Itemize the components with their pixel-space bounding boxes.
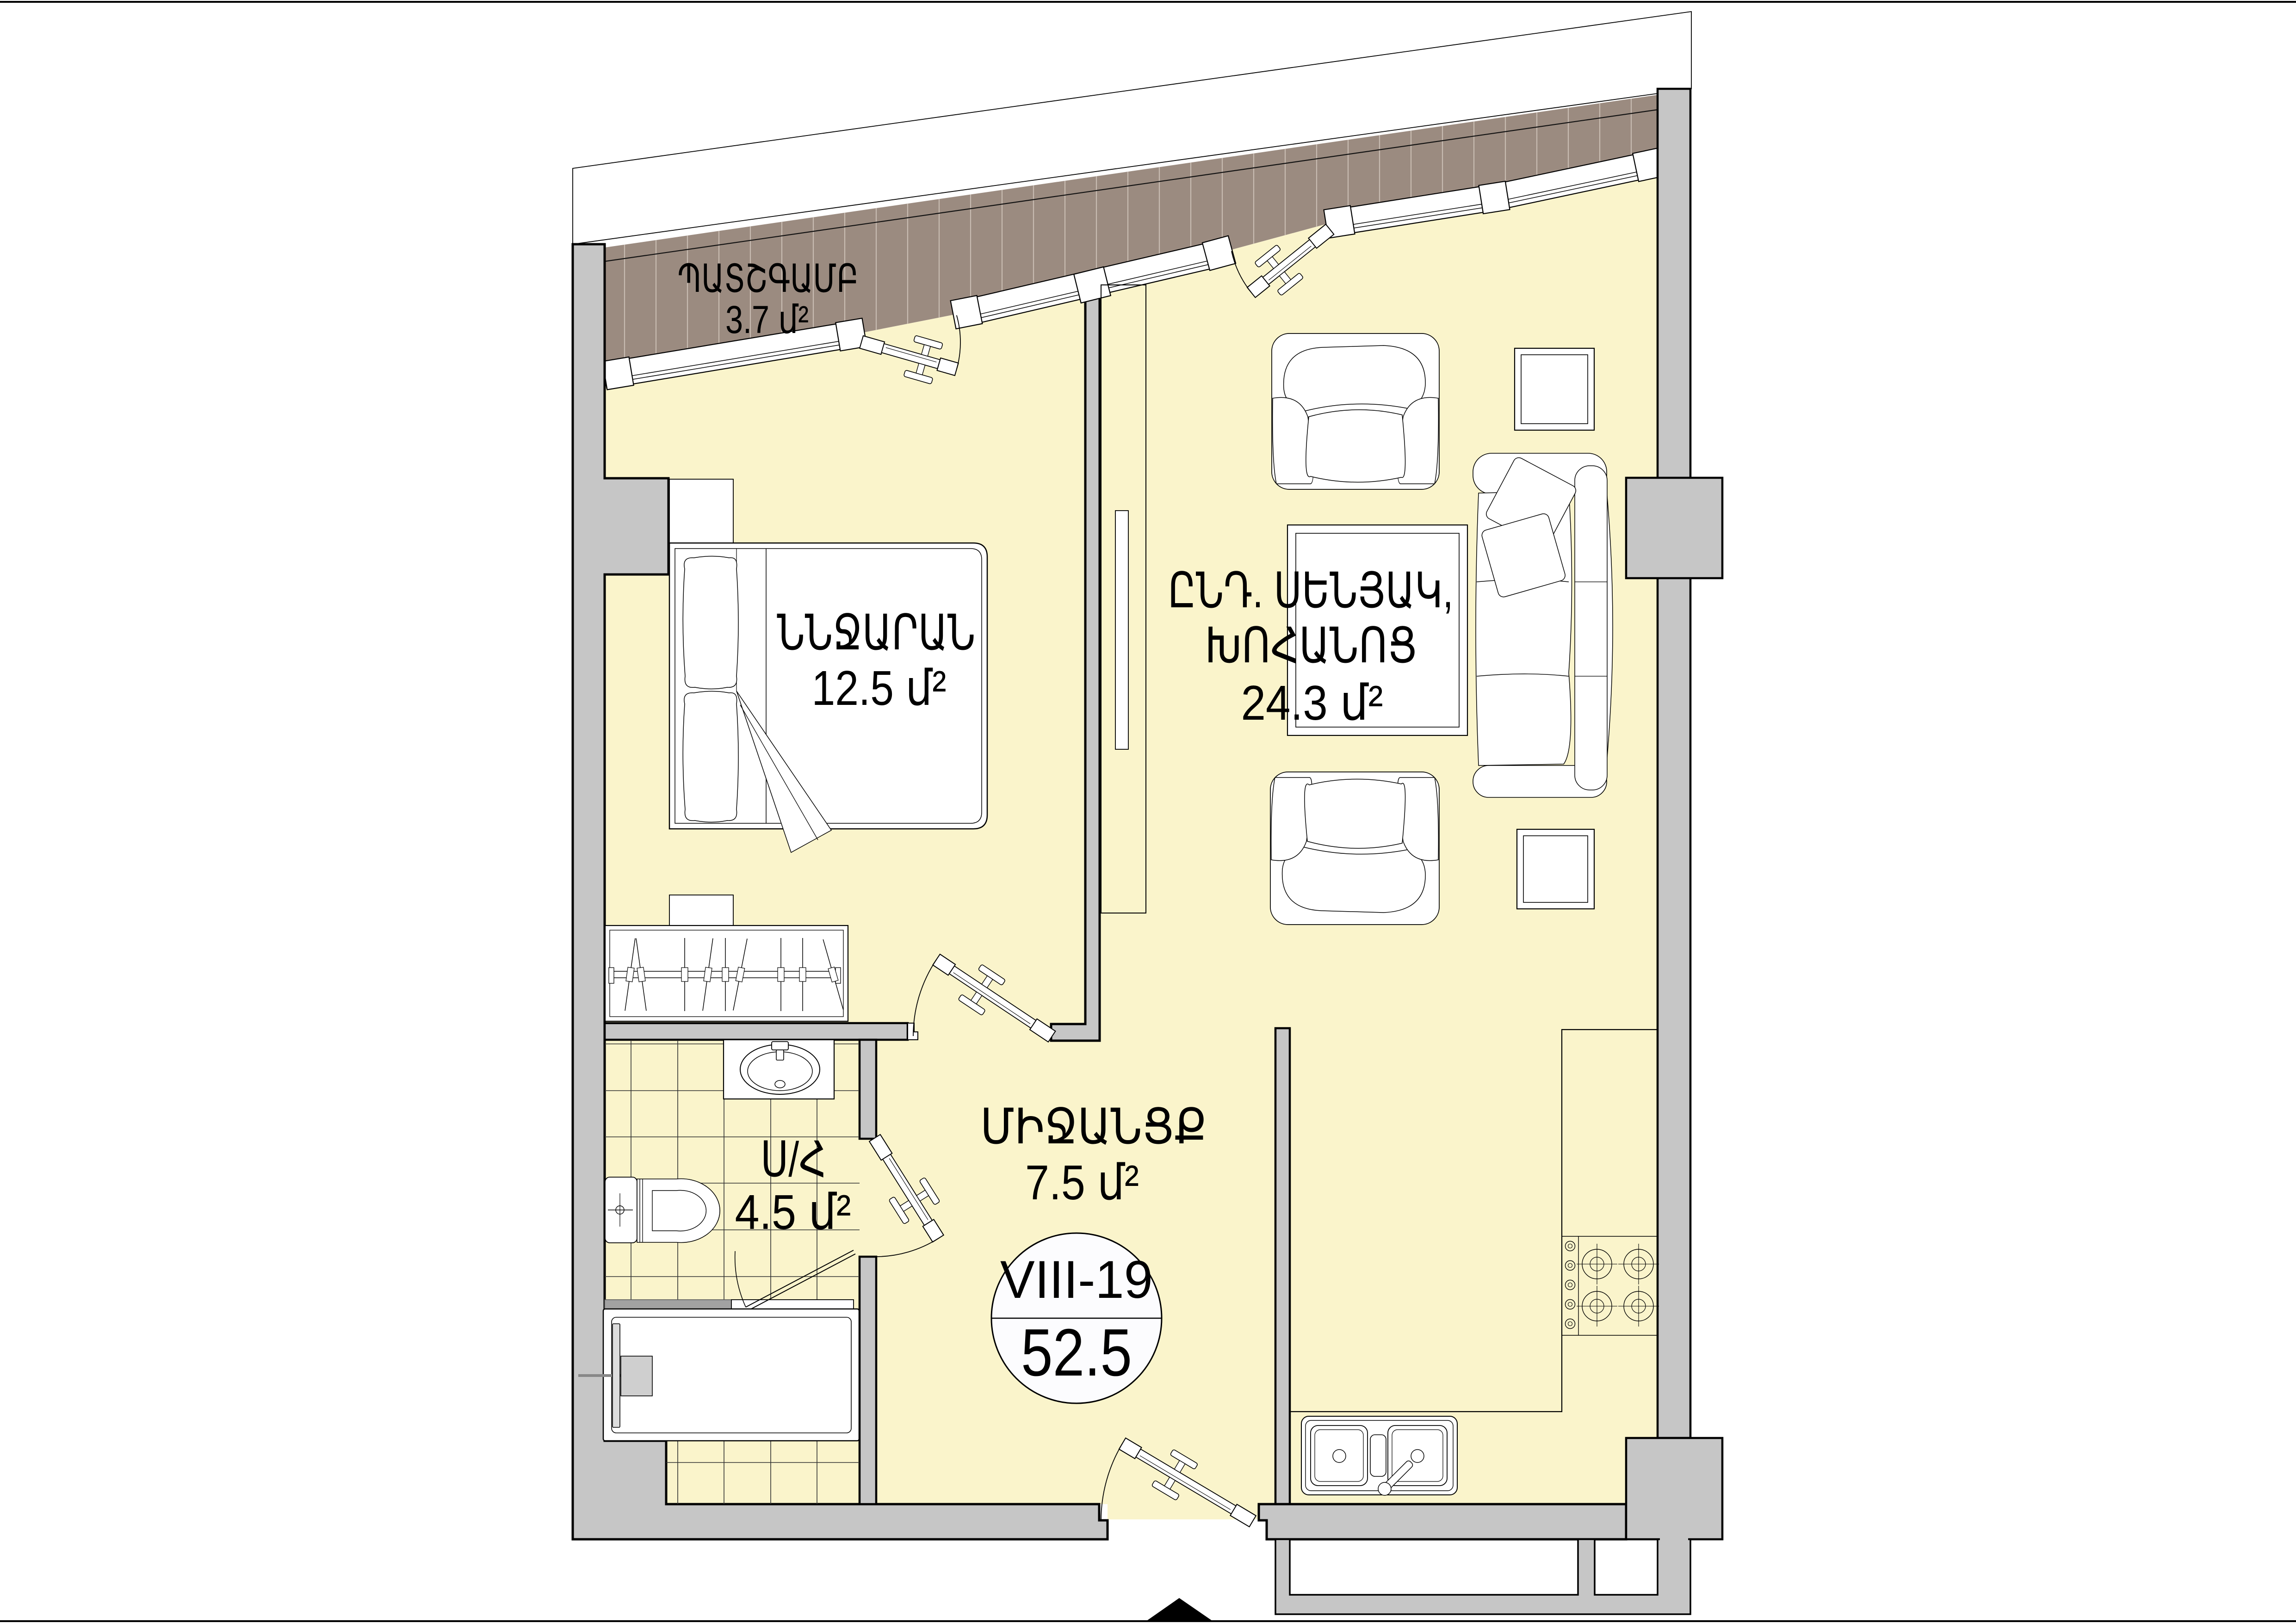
- svg-text:3.7 մ²: 3.7 մ²: [725, 298, 809, 341]
- svg-text:24.3 մ²: 24.3 մ²: [1241, 676, 1383, 730]
- svg-text:ՄԻՋԱՆՑՔ: ՄԻՋԱՆՑՔ: [980, 1099, 1207, 1154]
- svg-text:ԽՈՀԱՆՈՑ: ԽՈՀԱՆՈՑ: [1205, 618, 1417, 673]
- svg-text:7.5 մ²: 7.5 մ²: [1025, 1155, 1139, 1210]
- svg-text:VIII-19: VIII-19: [1000, 1250, 1153, 1309]
- svg-text:ՊԱՏՇԳԱՄԲ: ՊԱՏՇԳԱՄԲ: [678, 257, 859, 300]
- svg-text:4.5 մ²: 4.5 մ²: [735, 1185, 851, 1240]
- svg-text:12.5 մ²: 12.5 մ²: [812, 661, 947, 716]
- svg-text:ԸՆԴ. ՍԵՆՅԱԿ,: ԸՆԴ. ՍԵՆՅԱԿ,: [1168, 563, 1454, 618]
- svg-text:52.5: 52.5: [1021, 1315, 1132, 1390]
- svg-text:Ս/Հ: Ս/Հ: [761, 1132, 826, 1187]
- svg-text:ՆՆՋԱՐԱՆ: ՆՆՋԱՐԱՆ: [777, 605, 976, 660]
